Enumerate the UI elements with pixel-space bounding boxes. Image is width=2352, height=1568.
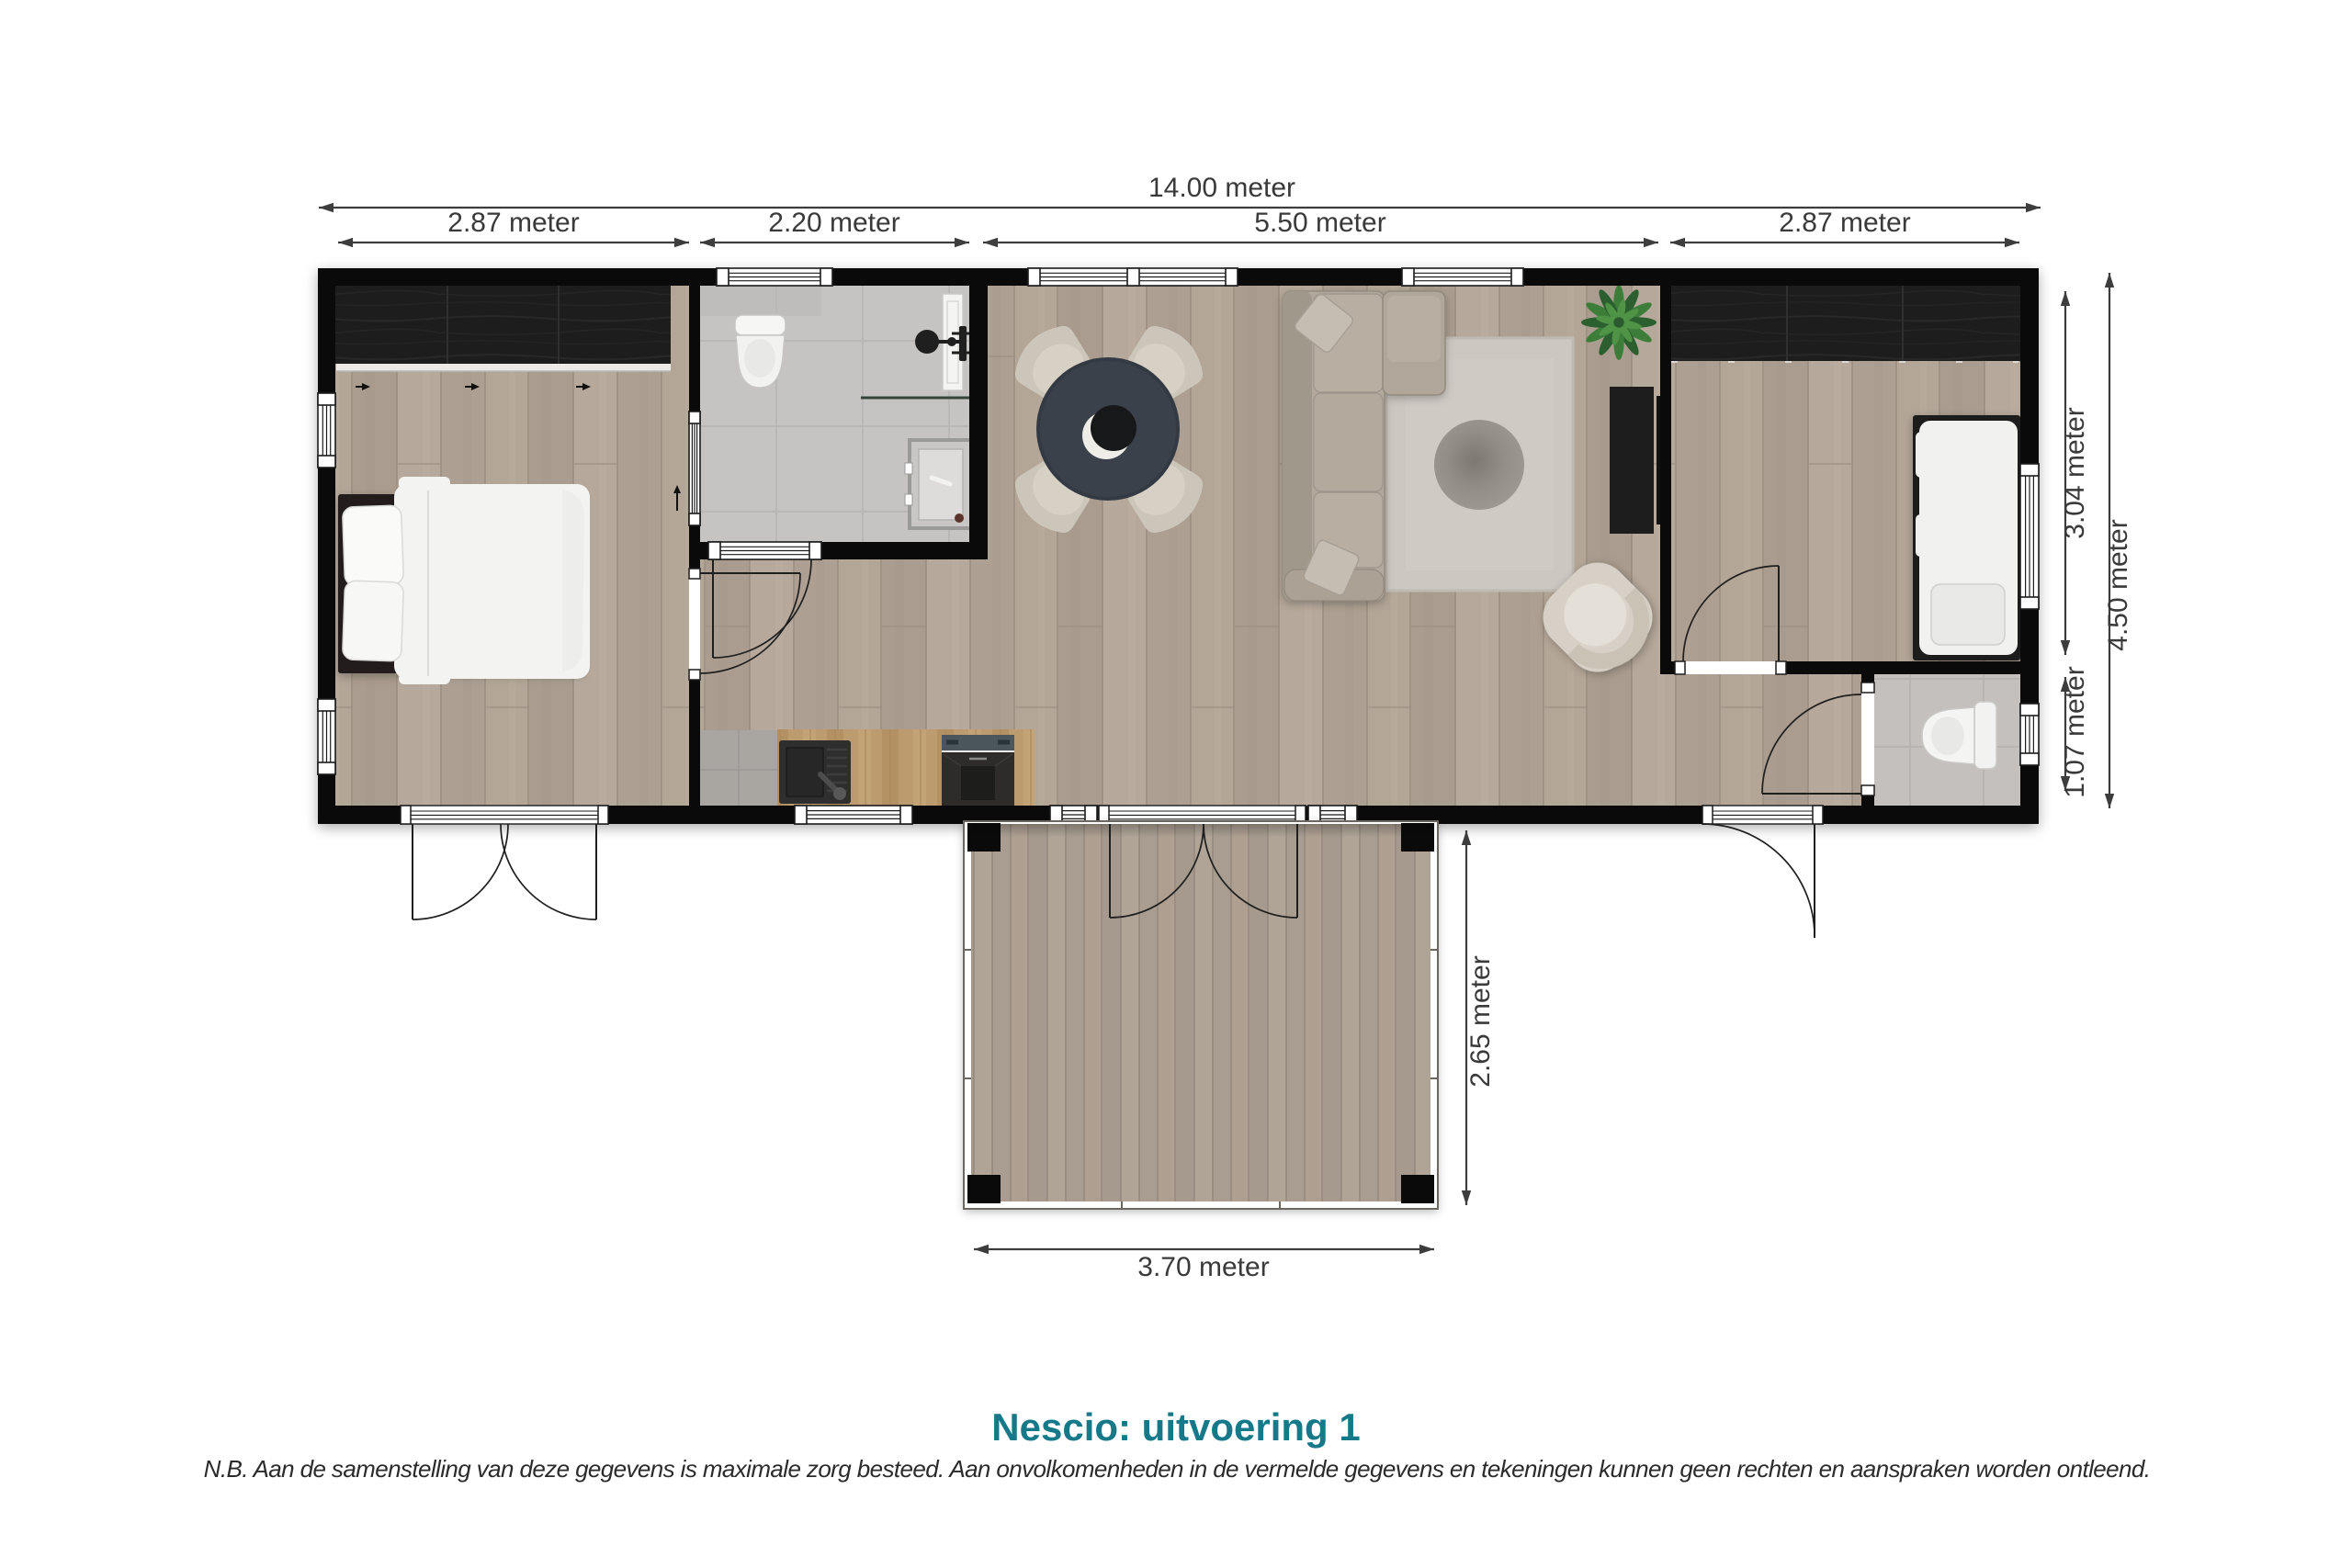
svg-text:2.87 meter: 2.87 meter	[447, 208, 579, 238]
svg-text:3.70 meter: 3.70 meter	[1137, 1252, 1269, 1282]
svg-text:2.87 meter: 2.87 meter	[1779, 208, 1910, 238]
svg-text:N.B. Aan de samenstelling van: N.B. Aan de samenstelling van deze gegev…	[204, 1455, 2151, 1483]
svg-text:14.00 meter: 14.00 meter	[1148, 173, 1295, 203]
svg-text:3.04 meter: 3.04 meter	[2060, 407, 2090, 538]
svg-text:Nescio: uitvoering 1: Nescio: uitvoering 1	[991, 1405, 1360, 1449]
svg-text:1.07 meter: 1.07 meter	[2060, 666, 2090, 797]
svg-text:2.65 meter: 2.65 meter	[1465, 955, 1496, 1087]
svg-text:5.50 meter: 5.50 meter	[1254, 208, 1385, 238]
svg-text:2.20 meter: 2.20 meter	[768, 208, 899, 238]
svg-text:4.50 meter: 4.50 meter	[2103, 519, 2133, 650]
